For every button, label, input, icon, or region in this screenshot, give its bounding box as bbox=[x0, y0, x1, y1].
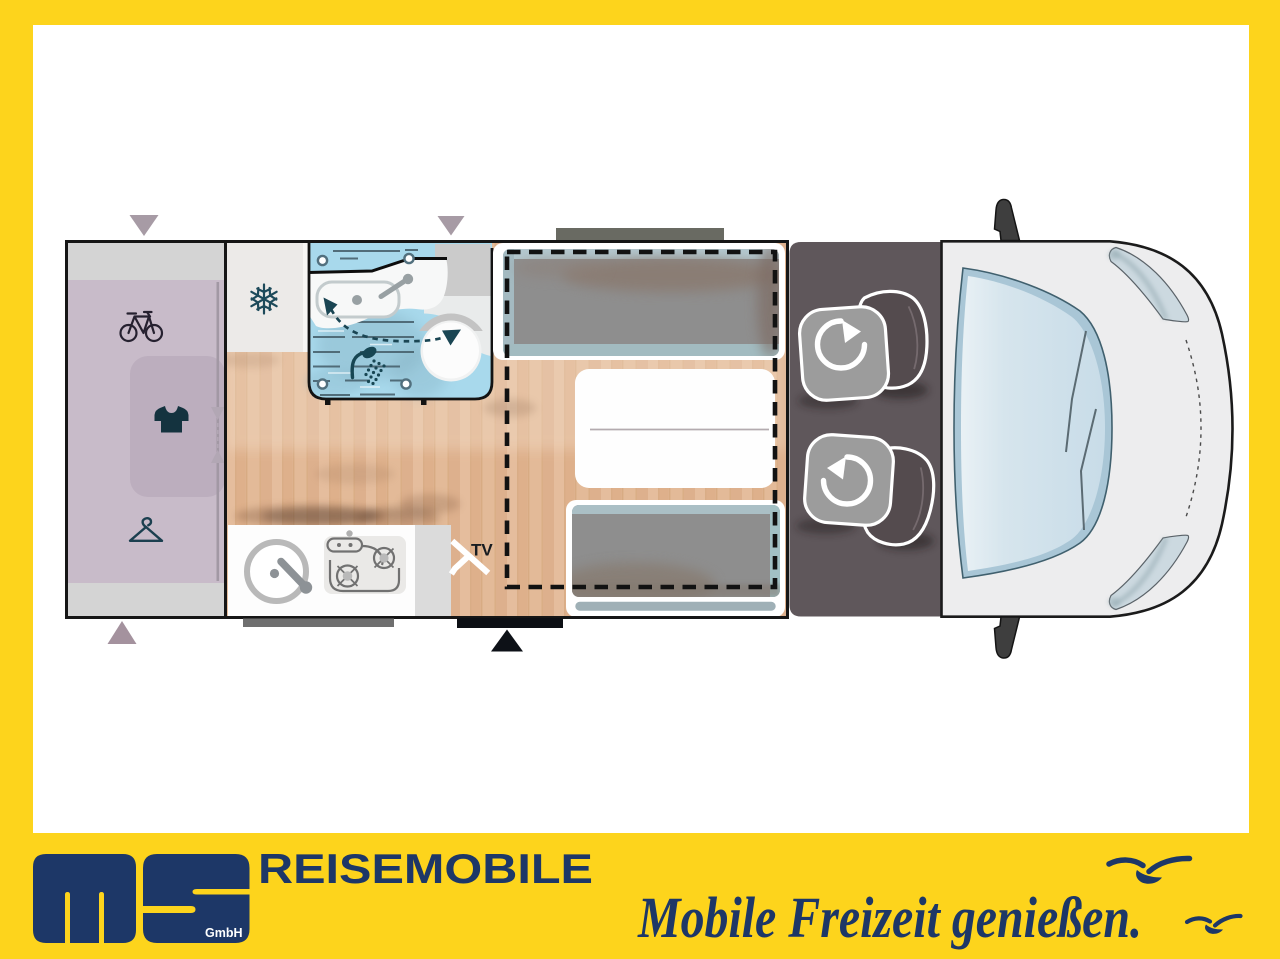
svg-text:TV: TV bbox=[471, 541, 493, 560]
svg-text:REISEMOBILE: REISEMOBILE bbox=[258, 845, 593, 892]
svg-text:GmbH: GmbH bbox=[205, 926, 243, 940]
svg-text:Mobile Freizeit genießen.: Mobile Freizeit genießen. bbox=[637, 885, 1142, 950]
